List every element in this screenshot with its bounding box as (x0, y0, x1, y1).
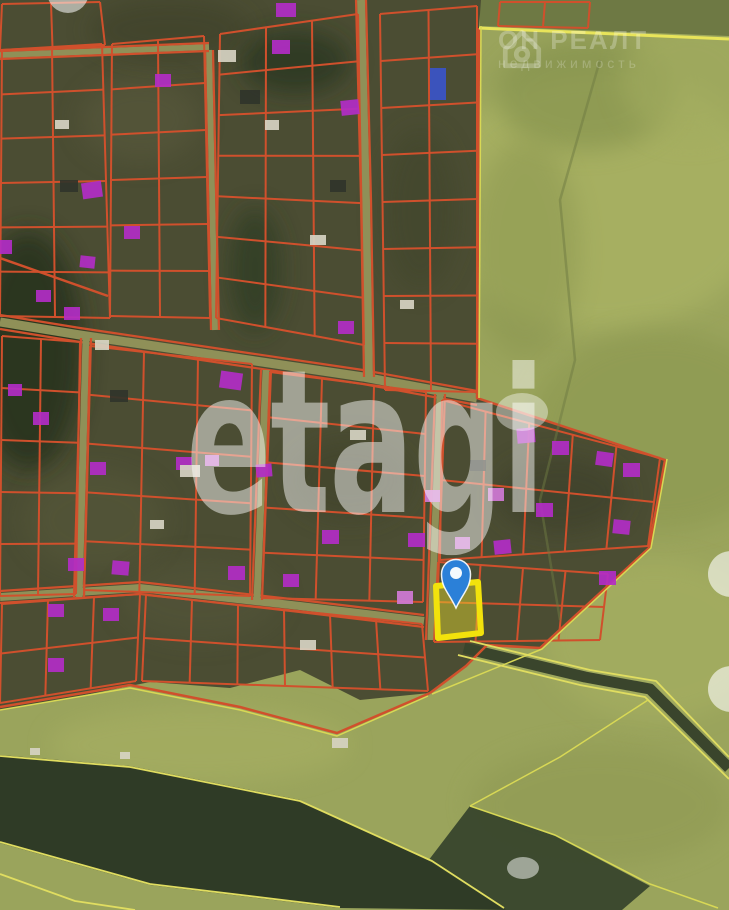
building (219, 371, 243, 391)
building (536, 503, 553, 517)
building (90, 462, 106, 475)
building (205, 455, 219, 466)
building (30, 748, 40, 755)
building (111, 560, 129, 575)
parcel-block (1, 492, 78, 493)
building (322, 530, 339, 544)
building (124, 226, 140, 239)
building (276, 3, 296, 17)
building (180, 465, 200, 477)
building (623, 463, 640, 477)
building (33, 412, 49, 425)
building (283, 574, 299, 587)
building (64, 307, 80, 320)
building (8, 384, 22, 396)
building (155, 74, 171, 87)
map-layers (0, 0, 729, 910)
building (95, 340, 109, 350)
building (425, 490, 440, 502)
building (338, 321, 354, 334)
building (81, 181, 103, 200)
building (255, 463, 272, 477)
building (150, 520, 164, 529)
settlement-texture (495, 457, 625, 533)
building (48, 604, 64, 617)
building (103, 608, 119, 621)
building (455, 537, 470, 549)
settlement-texture (25, 470, 165, 570)
map-canvas (0, 0, 729, 910)
building (332, 738, 348, 748)
building (408, 533, 425, 547)
building (120, 752, 130, 759)
building (55, 120, 69, 129)
settlement-texture (229, 208, 281, 332)
building (350, 430, 366, 440)
building (265, 120, 279, 130)
building (430, 68, 446, 100)
building (612, 519, 630, 535)
parcel-block (384, 296, 477, 297)
building (552, 441, 569, 455)
building (300, 640, 316, 650)
building (397, 591, 413, 604)
parcel-block (265, 27, 266, 327)
building (228, 566, 245, 580)
watermark-dot (496, 393, 548, 431)
location-pin-hole[interactable] (450, 567, 462, 579)
building (595, 451, 614, 467)
building (340, 99, 359, 116)
building (68, 558, 84, 571)
building (470, 460, 486, 471)
building (36, 290, 51, 302)
building (272, 40, 290, 54)
building (493, 539, 511, 555)
settlement-texture (240, 30, 350, 94)
building (0, 240, 12, 254)
parcel-block (1, 227, 108, 228)
building (488, 488, 504, 501)
building (110, 390, 128, 402)
building (330, 180, 346, 192)
settlement-texture (290, 440, 410, 520)
building (48, 658, 64, 672)
map-viewport[interactable]: etagi ОН РЕАЛТ недвижимость (0, 0, 729, 910)
building (60, 180, 78, 192)
parcel-block (0, 272, 108, 273)
building (400, 300, 414, 309)
building (599, 571, 616, 585)
building (218, 50, 236, 62)
building (240, 90, 260, 104)
parcel-block (384, 343, 477, 344)
parcel-block (111, 224, 208, 225)
building (310, 235, 326, 245)
building (79, 255, 95, 269)
watermark-dot (507, 857, 539, 879)
